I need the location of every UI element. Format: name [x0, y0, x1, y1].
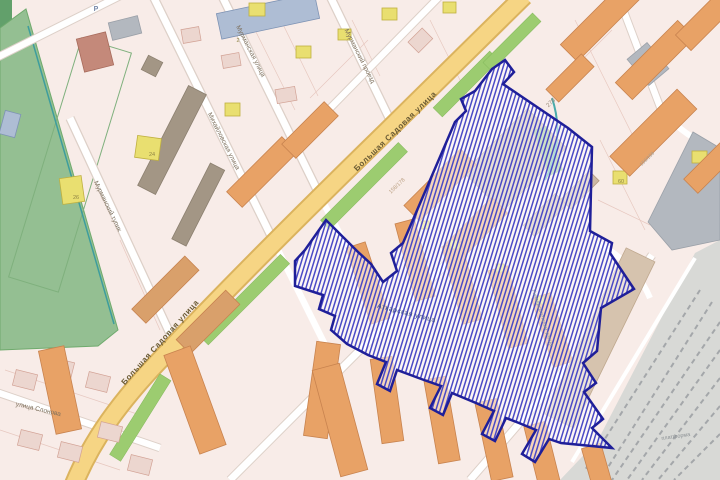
map-canvas[interactable]: Большая Садовая улицаБольшая Садовая ули… — [0, 0, 720, 480]
building-number-26: 26 — [73, 195, 79, 201]
map-svg: Большая Садовая улицаБольшая Садовая ули… — [0, 0, 720, 480]
building-number-2: 2 — [236, 38, 239, 44]
building-number-24: 24 — [149, 152, 155, 158]
building-number-60: 60 — [618, 179, 624, 185]
parking-label: Р — [94, 6, 99, 13]
